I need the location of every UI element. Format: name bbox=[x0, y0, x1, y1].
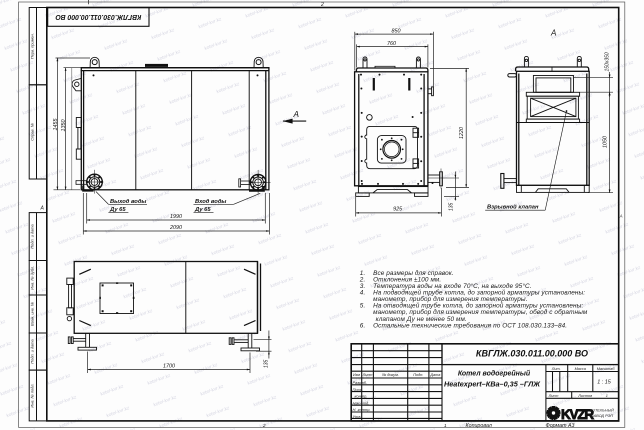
svg-text:А: А bbox=[550, 29, 556, 38]
svg-text:Справ. №: Справ. № bbox=[29, 122, 34, 140]
svg-text:Масштаб: Масштаб bbox=[597, 367, 616, 371]
svg-text:Вход воды: Вход воды bbox=[195, 199, 226, 205]
svg-text:Разраб.: Разраб. bbox=[353, 380, 367, 385]
svg-text:А: А bbox=[293, 110, 300, 119]
svg-text:6.: 6. bbox=[360, 322, 366, 329]
svg-text:1350: 1350 bbox=[61, 120, 67, 132]
svg-text:2: 2 bbox=[262, 423, 266, 428]
svg-text:Heatexpert–КВа–0,35 –ГЛЖ: Heatexpert–КВа–0,35 –ГЛЖ bbox=[444, 379, 541, 388]
svg-text:1: 1 bbox=[444, 423, 447, 428]
svg-text:Выход воды: Выход воды bbox=[110, 199, 146, 205]
svg-text:№ докум.: № докум. bbox=[382, 373, 399, 377]
svg-text:Масса: Масса bbox=[575, 367, 586, 371]
svg-text:Подп. и дата: Подп. и дата bbox=[29, 224, 34, 249]
svg-text:Дата: Дата bbox=[429, 373, 440, 377]
svg-text:1 : 15: 1 : 15 bbox=[597, 380, 611, 386]
svg-text:1220: 1220 bbox=[459, 127, 465, 139]
svg-text:А: А bbox=[40, 206, 45, 212]
svg-text:Подп.: Подп. bbox=[413, 373, 423, 377]
svg-text:5.: 5. bbox=[360, 303, 366, 310]
svg-text:Подп. и дата: Подп. и дата bbox=[29, 339, 34, 364]
svg-text:Пров.: Пров. bbox=[353, 387, 364, 392]
svg-text:Лист: Лист bbox=[548, 394, 559, 398]
svg-text:Остальные технические требован: Остальные технические требования по ОСТ … bbox=[373, 321, 567, 329]
svg-text:1700: 1700 bbox=[163, 363, 175, 369]
svg-text:850: 850 bbox=[392, 28, 401, 34]
svg-text:135: 135 bbox=[449, 202, 455, 211]
svg-text:925: 925 bbox=[393, 207, 403, 213]
svg-text:Инв. № подл.: Инв. № подл. bbox=[29, 383, 34, 407]
svg-text:ЗАВОД РЭП: ЗАВОД РЭП bbox=[591, 414, 613, 418]
svg-text:1050: 1050 bbox=[602, 136, 608, 148]
svg-text:Формат А3: Формат А3 bbox=[546, 423, 575, 429]
svg-text:1: 1 bbox=[606, 394, 608, 398]
svg-text:Взам. инв. №: Взам. инв. № bbox=[29, 301, 34, 326]
svg-text:Ду 65: Ду 65 bbox=[194, 207, 211, 213]
svg-text:2090: 2090 bbox=[169, 225, 182, 231]
svg-text:Лит.: Лит. bbox=[551, 367, 561, 371]
svg-text:760: 760 bbox=[387, 41, 396, 47]
svg-text:Перв. примен.: Перв. примен. bbox=[29, 33, 34, 59]
svg-text:Ду 65: Ду 65 bbox=[109, 207, 126, 213]
svg-text:1990: 1990 bbox=[170, 214, 182, 220]
svg-text:Лист: Лист bbox=[362, 373, 373, 377]
svg-text:Утв.: Утв. bbox=[353, 414, 362, 419]
svg-text:Нач.отд.: Нач.отд. bbox=[353, 400, 370, 405]
svg-text:150х350: 150х350 bbox=[604, 52, 610, 71]
svg-text:контр.: контр. bbox=[355, 394, 368, 399]
svg-text:Инв. № дубл.: Инв. № дубл. bbox=[29, 266, 34, 290]
svg-text:Копировал: Копировал bbox=[466, 423, 492, 429]
svg-text:КОТЕЛЬНЫЙ: КОТЕЛЬНЫЙ bbox=[590, 408, 614, 412]
svg-text:Котел водогрейный: Котел водогрейный bbox=[458, 369, 531, 377]
svg-text:2: 2 bbox=[320, 2, 324, 8]
svg-text:1455: 1455 bbox=[53, 118, 59, 131]
svg-text:КВГЛЖ.030.011.00.000 ВО: КВГЛЖ.030.011.00.000 ВО bbox=[476, 349, 588, 359]
svg-text:Н. контр.: Н. контр. bbox=[353, 407, 371, 412]
svg-text:Изм: Изм bbox=[353, 373, 360, 377]
svg-text:Листов: Листов bbox=[577, 394, 592, 398]
svg-text:135: 135 bbox=[263, 359, 269, 368]
svg-text:Взрывной клапан: Взрывной клапан bbox=[487, 204, 539, 211]
svg-text:КВГЛЖ.030.011.00.000 ВО: КВГЛЖ.030.011.00.000 ВО bbox=[55, 13, 141, 20]
svg-text:4.: 4. bbox=[360, 290, 366, 297]
svg-text:А: А bbox=[619, 214, 623, 219]
